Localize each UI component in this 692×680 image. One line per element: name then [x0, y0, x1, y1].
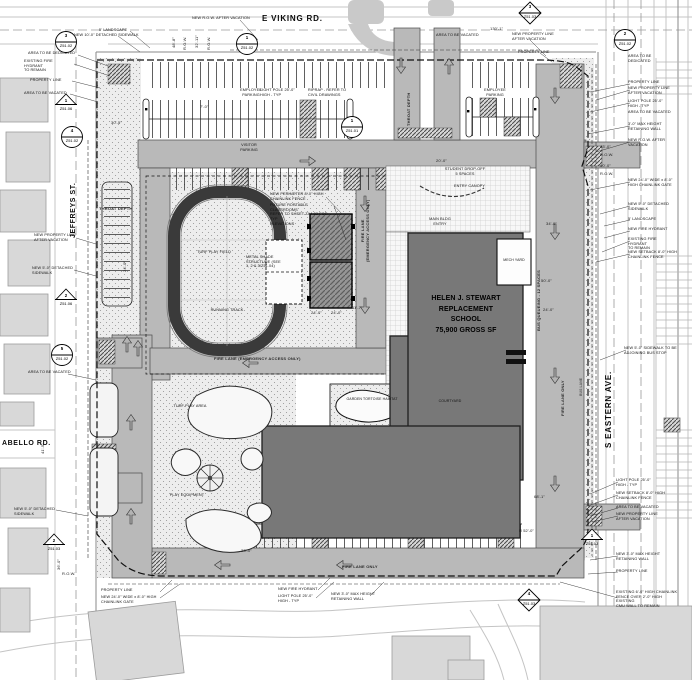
note-detached-sidewalk-w: NEW 5'-0" DETACHED SIDEWALK — [32, 266, 74, 275]
site-plan-sheet: E VIKING RD. JEFFREYS ST. S EASTERN AVE.… — [0, 0, 692, 680]
note-area-dedicated-ne: AREA TO BE DEDICATED — [628, 54, 668, 63]
street-label-eastern: S EASTERN AVE. — [604, 371, 614, 448]
dim-20-0: 20'-0" — [436, 158, 447, 163]
note-new-pl-se: NEW PROPERTY LINE AFTER VACATION — [616, 512, 660, 521]
note-new-pl-w: NEW PROPERTY LINE AFTER VACATION — [34, 233, 76, 242]
callout-1-z5101: 1Z51.01 — [339, 115, 365, 139]
garden-habitat-label: GARDEN TORTOISE HABITAT — [330, 397, 414, 401]
dim-130-1: 130'-1" — [490, 26, 503, 31]
callout-1-z5106: 1Z51.06 — [53, 93, 79, 117]
note-retaining-wall-e: 3'-0" MAX HEIGHT RETAINING WALL — [628, 122, 668, 131]
note-area-vacated-e: AREA TO BE VACATED — [628, 110, 671, 115]
fire-lane-emergency-label-vertical: FIRE LANE (EMERGENCY ACCESS ONLY) — [360, 200, 370, 262]
note-chainlink-gate-e: NEW 24'-0" WIDE x 8'-0" HIGH CHAINLINK G… — [628, 178, 682, 187]
plan-drawing — [0, 0, 692, 680]
dim-23-0: 23'-0" — [241, 548, 252, 553]
note-future-portables: FUTURE PORTABLE CLASSROOMS REFER TO SHEE… — [270, 203, 332, 227]
dim-24-0-bus: 24'-0" — [543, 307, 554, 312]
note-area-vacated-se: AREA TO BE VACATED — [616, 505, 659, 510]
note-chainlink-gate-sw: NEW 24'-0" WIDE x 8'-0" HIGH CHAINLINK G… — [101, 595, 163, 604]
note-new-hydrant-s: NEW FIRE HYDRANT — [278, 587, 318, 592]
note-light-pole-e: LIGHT POLE 25'-0" HIGH - TYP — [628, 99, 668, 108]
callout-4-z5103: 4Z51.03 — [516, 588, 542, 612]
dim-34-0: 34'-0" — [546, 221, 557, 226]
note-existing-cmu-fence: EXISTING 6'-0" HIGH CHAINLINK FENCE OVER… — [616, 590, 678, 609]
note-new-pl-e: NEW PROPERTY LINE AFTER VACATION — [628, 86, 672, 95]
callout-2-z5106: 2Z51.06 — [53, 288, 79, 312]
callout-3-z5103: 3Z51.03 — [517, 1, 543, 25]
note-student-dropoff: STUDENT DROP-OFF 5 SPACES — [444, 167, 486, 176]
callout-1-z5102: 1Z51.02 — [234, 32, 260, 56]
street-label-jeffreys: JEFFREYS ST. — [70, 183, 79, 238]
note-new-row-e: NEW R.O.W. AFTER VACATION — [628, 138, 668, 147]
note-turf-play-area: TURF PLAY AREA — [166, 404, 214, 409]
dim-r52: R 52'-0" — [519, 528, 534, 533]
note-detached-sidewalk-top: NEW 10'-0" DETACHED SIDEWALK — [74, 33, 139, 38]
callout-4-z5102: 4Z51.02 — [59, 125, 85, 149]
dim-11-7: 11'-7" — [352, 305, 363, 310]
dim-7-0: 7'-0" — [200, 104, 208, 109]
dim-24-0-drive: 24'-0" — [122, 261, 127, 272]
dim-32-11: 32'-11" — [194, 35, 199, 48]
dim-43-0: 43'-0" — [600, 144, 611, 149]
fire-lane-emergency-label-mid: FIRE LANE (EMERGENCY ACCESS ONLY) — [214, 356, 301, 361]
dim-36-0: 36'-0" — [56, 559, 61, 570]
note-visitor-parking: VISITOR PARKING — [234, 143, 264, 152]
dim-30-5: 30'-5" — [111, 120, 122, 125]
dim-row-2: R.O.W. — [206, 37, 211, 51]
courtyard-label: COURTYARD — [417, 399, 483, 403]
throat-depth-label-top: THROAT DEPTH — [406, 93, 411, 126]
callout-3-z5102: 3Z51.02 — [53, 30, 79, 54]
note-property-line-e: PROPERTY LINE — [628, 80, 660, 85]
note-turf-field: TURF PLAY FIELD — [184, 250, 244, 255]
dim-50-0-bus: 50'-0" — [541, 278, 552, 283]
callout-1-z5103: 1Z51.03 — [579, 528, 605, 552]
note-retaining-wall-se: NEW 3'-0" MAX HEIGHT RETAINING WALL — [616, 552, 662, 561]
dim-row-1: R.O.W. — [182, 37, 187, 51]
note-detached-sidewalk-sw: NEW 5'-0" DETACHED SIDEWALK — [14, 507, 56, 516]
street-label-viking: E VIKING RD. — [262, 14, 323, 24]
note-light-pole-se: LIGHT POLE 25'-0" HIGH - TYP — [616, 478, 670, 487]
note-light-pole-s: LIGHT POLE 25'-0" HIGH - TYP — [278, 594, 318, 603]
dim-row-5: R.O.W. — [62, 571, 76, 576]
note-existing-hydrant-nw: EXISTING FIRE HYDRANT TO REMAIN — [24, 59, 70, 73]
note-riprap: RIPRAP - REFER TO CIVIL DRAWINGS — [308, 88, 348, 97]
callout-2-z5102: 2Z51.02 — [612, 28, 638, 52]
dim-24-0-porta1: 24'-0" — [311, 310, 322, 315]
note-property-line-top: PROPERTY LINE — [518, 50, 550, 55]
callout-2-z5103: 2Z51.03 — [41, 533, 67, 557]
fire-lane-only-label-right: FIRE LANE ONLY — [560, 380, 565, 416]
note-detached-sidewalk-e: NEW 5'-0" DETACHED SIDEWALK — [628, 202, 672, 211]
note-metal-shade: METAL SHADE STRUCTURE (SEE 1, 2 & 3/Z51.… — [246, 255, 284, 269]
note-setback-fence-e: NEW SETBACK 8'-0" HIGH CHAINLINK FENCE — [628, 250, 678, 259]
fire-lane-only-label-bottom: FIRE LANE ONLY — [342, 564, 378, 569]
dim-24-0-porta2: 24'-0" — [331, 310, 342, 315]
note-new-pl-top: NEW PROPERTY LINE AFTER VACATION — [512, 32, 554, 41]
note-area-vacated-w: AREA TO BE VACATED — [28, 370, 71, 375]
note-employee-parking-e: EMPLOYEE PARKING — [480, 88, 510, 97]
note-property-line-nw: PROPERTY LINE — [30, 78, 62, 83]
east-parking-ticks — [656, 58, 692, 680]
dim-41-5: 41'-5" — [40, 443, 45, 454]
note-entry-canopy: ENTRY CANOPY — [454, 184, 485, 189]
note-light-pole-top: LIGHT POLE 25'-0" HIGH - TYP — [260, 88, 296, 97]
callout-5-z5102: 5Z51.02 — [49, 343, 75, 367]
note-landscape-e: 5' LANDSCAPE — [628, 217, 656, 222]
bus-lane-label: BUS LANE — [579, 378, 583, 396]
note-retaining-wall-s: NEW 3'-0" MAX HEIGHT RETAINING WALL — [331, 592, 381, 601]
note-main-entry: MAIN BLDG ENTRY — [426, 217, 454, 226]
note-play-equipment: PLAY EQUIPMENT — [164, 493, 210, 498]
note-running-track: RUNNING TRACK — [200, 308, 254, 313]
building-name-label: HELEN J. STEWART REPLACEMENT SCHOOL 75,9… — [410, 294, 522, 336]
throat-depth-label-left: THROAT DEPTH — [99, 206, 132, 211]
note-property-line-se: PROPERTY LINE — [616, 569, 648, 574]
dim-68-1: 68'-1" — [534, 494, 545, 499]
note-setback-fence-se: NEW SETBACK 8'-0" HIGH CHAINLINK FENCE — [616, 491, 668, 500]
shade-structure-circle — [197, 465, 223, 491]
mech-yard-label: MECH YARD — [497, 258, 531, 262]
dim-row-4: R.O.W. — [600, 171, 614, 176]
note-new-row: NEW R.O.W. AFTER VACATION — [192, 16, 250, 21]
note-area-vacated-top: AREA TO BE VACATED — [436, 33, 479, 38]
note-sidewalk-bus-stop: NEW 5'-0" SIDEWALK TO BE ADJOINING BUS S… — [624, 346, 678, 355]
note-perimeter-fence: NEW PERIMETER 8'-0" HIGH CHAINLINK FENCE — [270, 192, 324, 201]
dim-48-8: 48'-8" — [171, 37, 176, 48]
note-new-hydrant-e: NEW FIRE HYDRANT — [628, 227, 668, 232]
dim-row-3: R.O.W. — [600, 152, 614, 157]
note-property-line-sw: PROPERTY LINE — [101, 588, 133, 593]
dim-50-0-e: 50'-0" — [600, 163, 611, 168]
